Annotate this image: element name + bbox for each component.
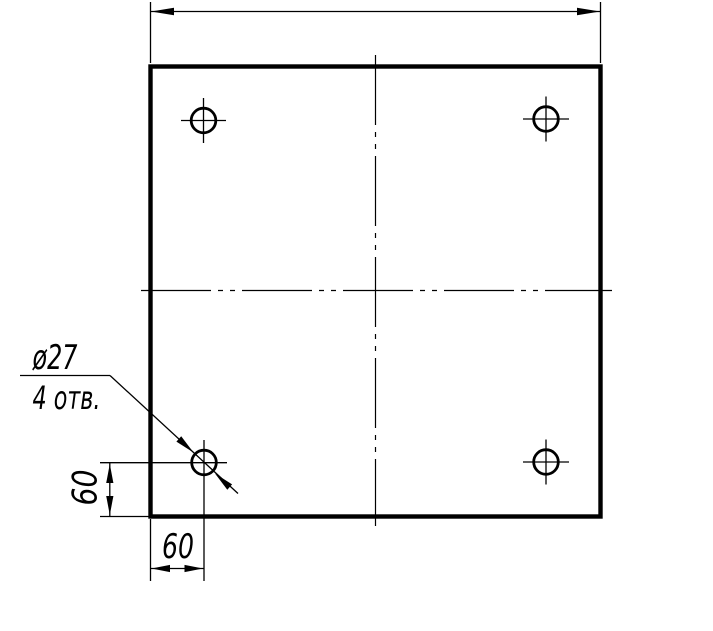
vertical-offset-label: 60 (66, 470, 106, 506)
v-dim-arrow-down (106, 496, 113, 515)
horizontal-offset-label: 60 (162, 527, 194, 567)
top-dimension (151, 2, 601, 63)
hole-bottom-right (523, 440, 569, 485)
horizontal-offset-dimension: 60 (151, 519, 204, 581)
hole-top-right (523, 97, 569, 142)
top-dim-arrow-right (577, 8, 600, 16)
leader-arrow-lower (215, 474, 232, 490)
holes-count-label: 4 отв. (33, 379, 101, 417)
v-dim-arrow-up (106, 464, 113, 483)
leader-diagonal-line (110, 376, 238, 494)
leader-callout: ø27 4 отв. (20, 338, 238, 494)
vertical-offset-dimension: 60 (66, 463, 153, 517)
hole-top-left (181, 98, 226, 143)
drawing-sheet: ø27 4 отв. 60 60 (0, 0, 713, 631)
engineering-drawing-canvas: ø27 4 отв. 60 60 (0, 0, 713, 631)
top-dim-arrow-left (151, 8, 174, 16)
diameter-label: ø27 (32, 338, 78, 378)
